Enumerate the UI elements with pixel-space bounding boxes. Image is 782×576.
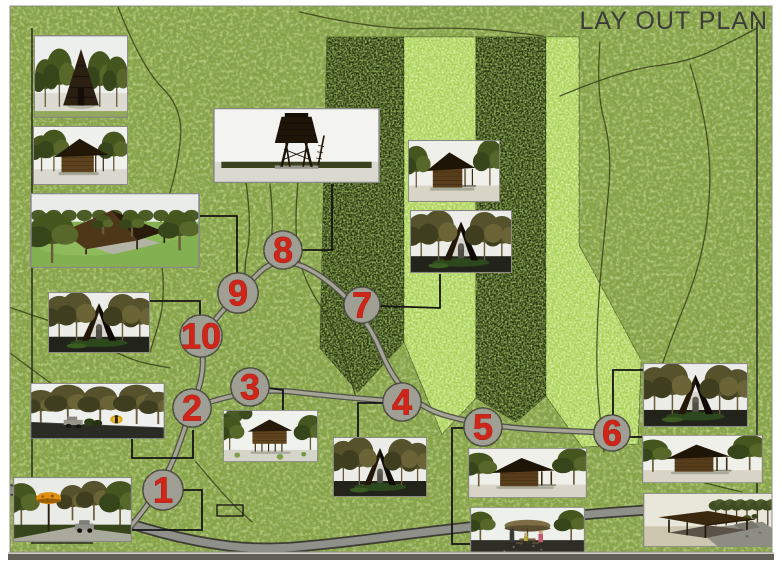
station-1: 1 [143, 470, 183, 511]
photo-watch-tower [213, 108, 380, 183]
photo-teepee-hut [32, 35, 130, 118]
photo-cabin-mid [401, 140, 506, 202]
layout-plan-map: 12345678910 [0, 0, 782, 576]
station-number: 9 [228, 273, 248, 314]
station-3: 3 [231, 367, 269, 408]
station-number: 8 [273, 230, 293, 271]
photo-trail-vehicle [20, 383, 176, 439]
station-number: 10 [181, 316, 221, 357]
photo-aframe-east [635, 363, 754, 427]
photo-flat-shelter [643, 493, 777, 547]
station-5: 5 [464, 407, 502, 448]
page-title: LAY OUT PLAN [580, 7, 768, 36]
photo-cabin-south [459, 448, 594, 498]
station-number: 2 [182, 388, 202, 429]
station-2: 2 [173, 388, 211, 429]
station-8: 8 [264, 230, 302, 271]
photo-log-cabin [27, 126, 128, 185]
photo-lamp-car [1, 477, 139, 542]
photo-aframe-hut-c [326, 437, 433, 497]
photo-stilt-cabin [214, 407, 326, 462]
photo-umbrella-picnic [464, 507, 588, 558]
photo-aframe-shrine [402, 210, 518, 273]
photo-cabin-east [633, 435, 771, 483]
station-4: 4 [383, 382, 421, 423]
station-10: 10 [180, 315, 222, 357]
station-number: 5 [473, 407, 493, 448]
photo-open-shelter [24, 193, 200, 268]
station-number: 6 [602, 413, 622, 454]
station-number: 3 [240, 367, 260, 408]
station-number: 4 [392, 382, 412, 423]
station-9: 9 [218, 273, 258, 314]
photo-aframe-shelter [40, 292, 156, 353]
station-number: 1 [153, 470, 173, 511]
station-number: 7 [352, 285, 372, 326]
